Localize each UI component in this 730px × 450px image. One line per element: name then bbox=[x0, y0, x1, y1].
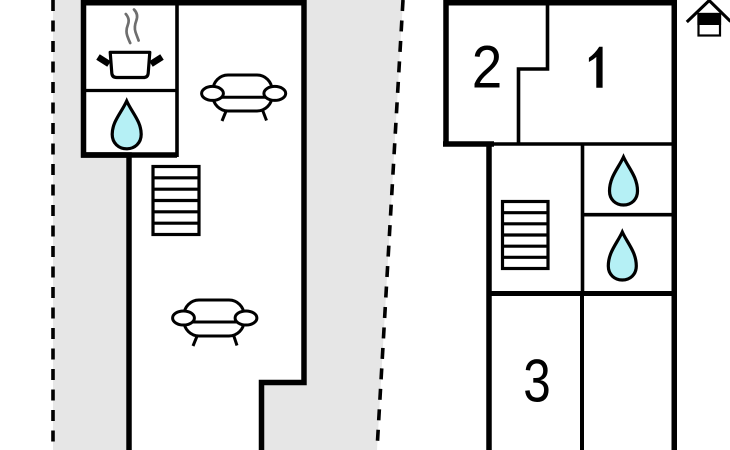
svg-text:3: 3 bbox=[523, 347, 551, 414]
svg-text:2: 2 bbox=[472, 34, 503, 101]
